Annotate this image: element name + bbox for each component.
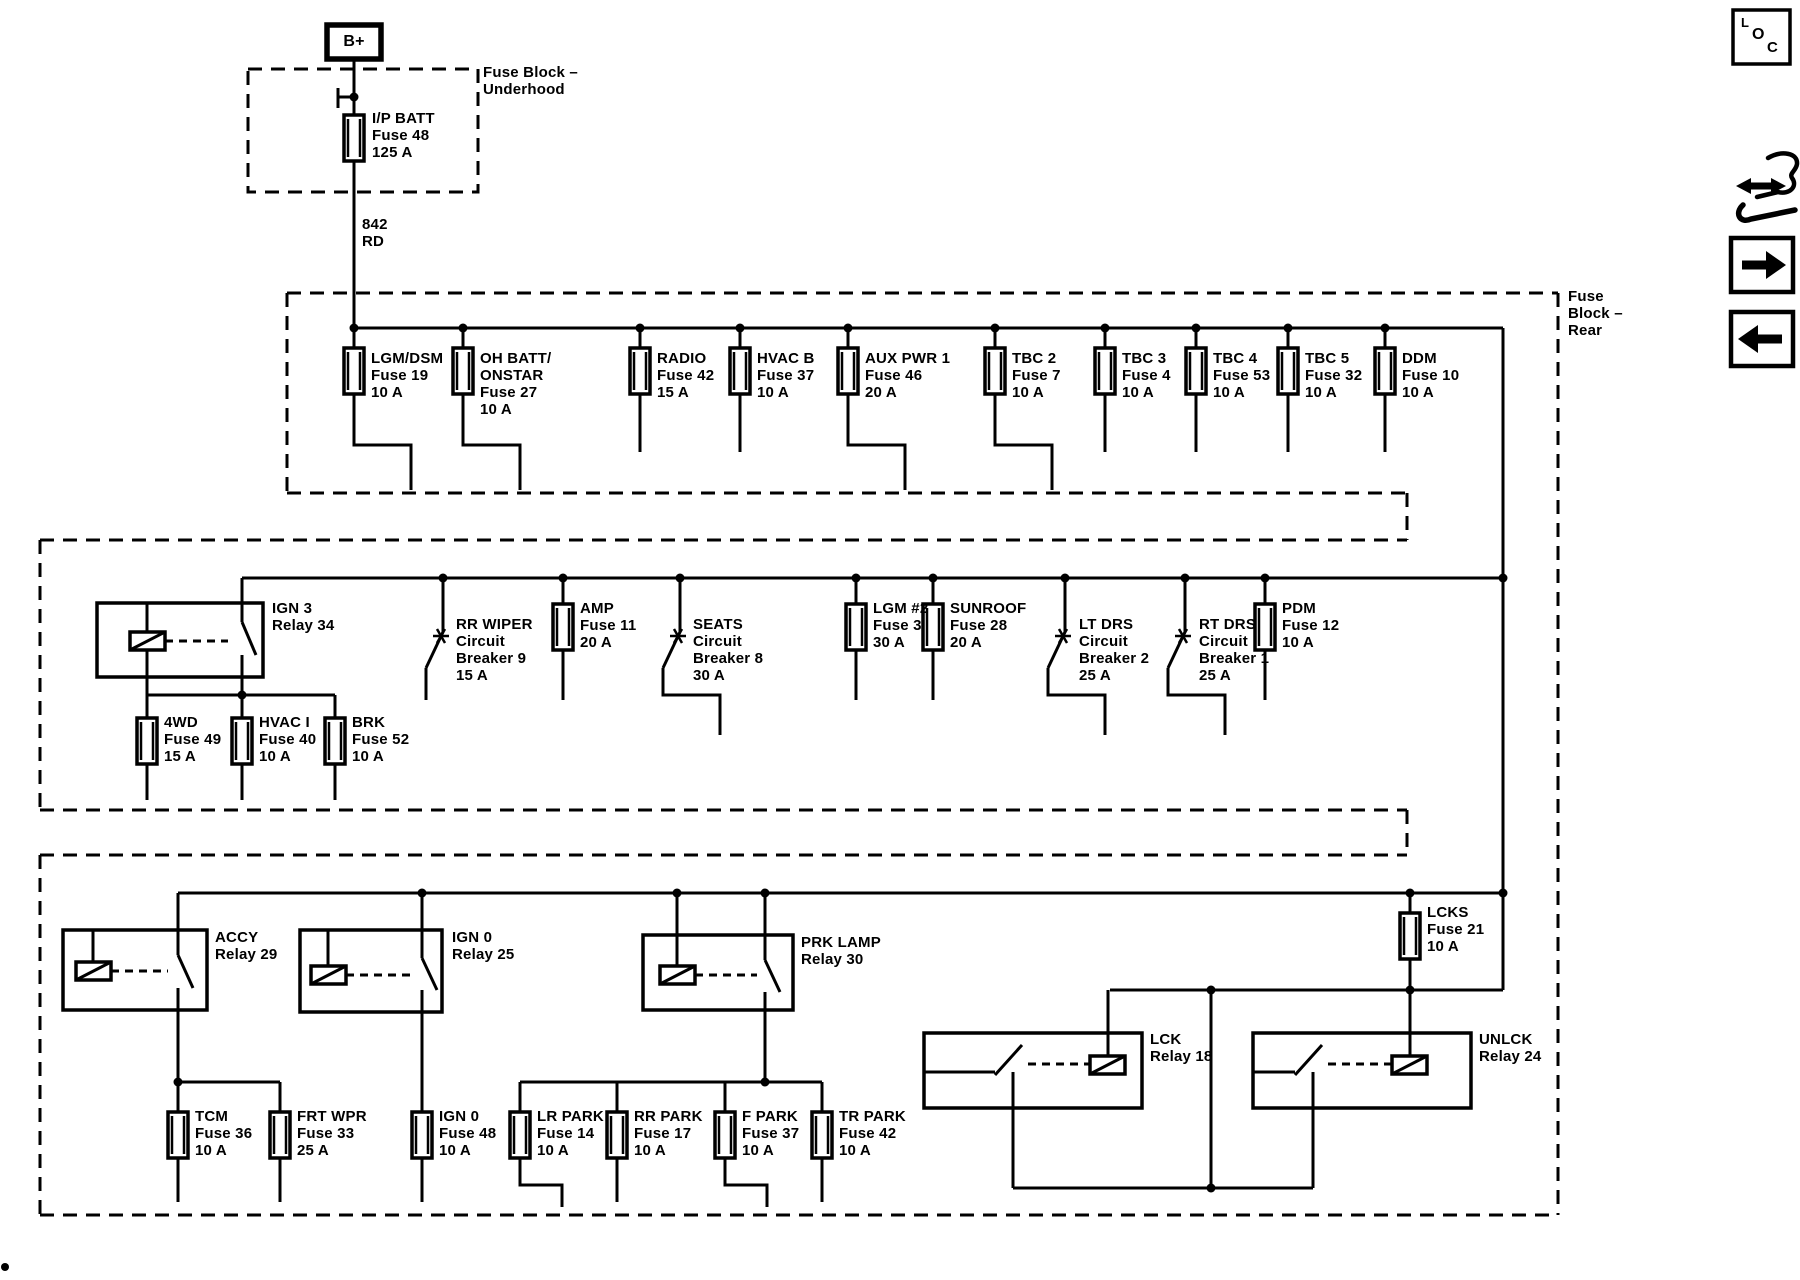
loc-letter-c: C <box>1767 39 1778 56</box>
label-line: 20 A <box>580 634 636 651</box>
label-line: 10 A <box>439 1142 496 1159</box>
label-relay-prk-lamp: PRK LAMPRelay 30 <box>801 934 881 968</box>
label-line: Fuse 37 <box>742 1125 799 1142</box>
label-line: PRK LAMP <box>801 934 881 951</box>
label-fuse-pdm: PDMFuse 1210 A <box>1282 600 1339 651</box>
label-line: Breaker 2 <box>1079 650 1149 667</box>
label-fuse-amp: AMPFuse 1120 A <box>580 600 636 651</box>
page-mark <box>1 1263 9 1271</box>
label-line: 30 A <box>873 634 928 651</box>
bplus-terminal-label: B+ <box>327 33 381 50</box>
label-relay-ign3: IGN 3Relay 34 <box>272 600 334 634</box>
label-fuse-hvac-b: HVAC BFuse 3710 A <box>757 350 815 401</box>
label-line: LGM #2 <box>873 600 928 617</box>
label-line: SUNROOF <box>950 600 1026 617</box>
label-line: 30 A <box>693 667 763 684</box>
label-line: HVAC B <box>757 350 815 367</box>
label-fuse-4wd: 4WDFuse 4915 A <box>164 714 221 765</box>
label-line: 20 A <box>865 384 950 401</box>
label-fuse-block-underhood: Fuse Block –Underhood <box>483 64 578 98</box>
label-line: LCK <box>1150 1031 1212 1048</box>
breaker-symbol-rt-drs <box>1175 629 1191 643</box>
label-relay-ign0: IGN 0Relay 25 <box>452 929 514 963</box>
label-fuse-lgm-2: LGM #2Fuse 330 A <box>873 600 928 651</box>
label-line: IGN 0 <box>439 1108 496 1125</box>
loc-letter-l: L <box>1741 15 1749 30</box>
label-fuse-tbc-3: TBC 3Fuse 410 A <box>1122 350 1171 401</box>
label-line: 10 A <box>1122 384 1171 401</box>
label-line: ACCY <box>215 929 277 946</box>
label-line: Fuse 32 <box>1305 367 1362 384</box>
label-line: Circuit <box>1199 633 1269 650</box>
fuse-symbol-ign-0 <box>412 1112 432 1158</box>
label-line: LCKS <box>1427 904 1484 921</box>
label-line: 15 A <box>657 384 714 401</box>
next-page-icon[interactable] <box>1731 238 1793 292</box>
label-line: Breaker 9 <box>456 650 533 667</box>
label-fuse-lr-park: LR PARKFuse 1410 A <box>537 1108 604 1159</box>
label-fuse-sunroof: SUNROOFFuse 2820 A <box>950 600 1026 651</box>
label-relay-lck: LCKRelay 18 <box>1150 1031 1212 1065</box>
label-fuse-ip-batt: I/P BATTFuse 48125 A <box>372 110 435 161</box>
label-fuse-tr-park: TR PARKFuse 4210 A <box>839 1108 906 1159</box>
label-line: 10 A <box>757 384 815 401</box>
label-line: Fuse 48 <box>372 127 435 144</box>
label-line: AMP <box>580 600 636 617</box>
label-line: AUX PWR 1 <box>865 350 950 367</box>
label-line: FRT WPR <box>297 1108 367 1125</box>
fuse-symbol-tr-park <box>812 1112 832 1158</box>
fuse-symbol-amp <box>553 604 573 650</box>
label-line: Fuse 42 <box>657 367 714 384</box>
label-line: TBC 3 <box>1122 350 1171 367</box>
label-line: 25 A <box>1079 667 1149 684</box>
fuse-symbol-tbc-3 <box>1095 348 1115 394</box>
label-line: UNLCK <box>1479 1031 1541 1048</box>
label-line: PDM <box>1282 600 1339 617</box>
label-line: Fuse Block – <box>483 64 578 81</box>
wiring-diagram-page: B+ Fuse Block –Underhood I/P BATTFuse 48… <box>0 0 1800 1280</box>
label-line: 10 A <box>195 1142 252 1159</box>
label-fuse-brk: BRKFuse 5210 A <box>352 714 409 765</box>
label-breaker-lt-drs: LT DRSCircuitBreaker 225 A <box>1079 616 1149 684</box>
fuse-symbol-lgm-2 <box>846 604 866 650</box>
label-line: IGN 0 <box>452 929 514 946</box>
label-line: Fuse 3 <box>873 617 928 634</box>
label-line: 15 A <box>164 748 221 765</box>
breaker-symbol-seats <box>670 629 686 643</box>
label-fuse-frt-wpr: FRT WPRFuse 3325 A <box>297 1108 367 1159</box>
label-line: 10 A <box>480 401 551 418</box>
fuse-symbol-lgm-dsm <box>344 348 364 394</box>
label-fuse-tbc-5: TBC 5Fuse 3210 A <box>1305 350 1362 401</box>
label-line: Fuse 40 <box>259 731 316 748</box>
fuse-symbol-tbc-2 <box>985 348 1005 394</box>
label-line: 10 A <box>1213 384 1270 401</box>
label-line: Fuse 14 <box>537 1125 604 1142</box>
label-relay-unlck: UNLCKRelay 24 <box>1479 1031 1541 1065</box>
label-line: Circuit <box>693 633 763 650</box>
label-line: Fuse 52 <box>352 731 409 748</box>
fuse-symbol-tbc-5 <box>1278 348 1298 394</box>
label-line: Fuse 10 <box>1402 367 1459 384</box>
label-line: Fuse 27 <box>480 384 551 401</box>
label-line: Relay 30 <box>801 951 881 968</box>
previous-page-icon[interactable] <box>1731 312 1793 366</box>
fuse-symbol-radio <box>630 348 650 394</box>
fuse-symbol-tcm <box>168 1112 188 1158</box>
breaker-symbol-rr-wiper <box>433 629 449 643</box>
pointer-arrows-icon[interactable] <box>1736 153 1797 220</box>
label-line: 10 A <box>839 1142 906 1159</box>
label-breaker-rr-wiper: RR WIPERCircuitBreaker 915 A <box>456 616 533 684</box>
label-line: Relay 24 <box>1479 1048 1541 1065</box>
label-line: Fuse 21 <box>1427 921 1484 938</box>
label-line: Circuit <box>1079 633 1149 650</box>
label-line: TCM <box>195 1108 252 1125</box>
label-line: 10 A <box>352 748 409 765</box>
label-fuse-tcm: TCMFuse 3610 A <box>195 1108 252 1159</box>
label-fuse-ign-0: IGN 0Fuse 4810 A <box>439 1108 496 1159</box>
label-line: 20 A <box>950 634 1026 651</box>
label-fuse-radio: RADIOFuse 4215 A <box>657 350 714 401</box>
fuse-symbol-lr-park <box>510 1112 530 1158</box>
loc-letter-o: O <box>1752 26 1764 44</box>
label-line: 10 A <box>742 1142 799 1159</box>
label-line: Fuse 53 <box>1213 367 1270 384</box>
label-line: Fuse 48 <box>439 1125 496 1142</box>
label-line: Relay 18 <box>1150 1048 1212 1065</box>
label-line: HVAC I <box>259 714 316 731</box>
fuse-symbol-rr-park <box>607 1112 627 1158</box>
label-line: TBC 5 <box>1305 350 1362 367</box>
label-line: Breaker 8 <box>693 650 763 667</box>
fuse-symbol-f-park <box>715 1112 735 1158</box>
label-fuse-hvac-i: HVAC IFuse 4010 A <box>259 714 316 765</box>
label-line: Fuse 36 <box>195 1125 252 1142</box>
fuse-symbol-oh-batt-onstar <box>453 348 473 394</box>
label-line: Fuse 19 <box>371 367 443 384</box>
label-line: Fuse <box>1568 288 1623 305</box>
label-line: Fuse 12 <box>1282 617 1339 634</box>
label-line: TBC 2 <box>1012 350 1061 367</box>
label-line: 15 A <box>456 667 533 684</box>
label-line: LT DRS <box>1079 616 1149 633</box>
label-line: 10 A <box>634 1142 703 1159</box>
label-line: 10 A <box>371 384 443 401</box>
fuse-symbol-ip-batt <box>344 115 364 161</box>
label-fuse-tbc-4: TBC 4Fuse 5310 A <box>1213 350 1270 401</box>
label-line: 10 A <box>1012 384 1061 401</box>
label-line: TR PARK <box>839 1108 906 1125</box>
label-line: Relay 25 <box>452 946 514 963</box>
label-line: 4WD <box>164 714 221 731</box>
label-line: DDM <box>1402 350 1459 367</box>
label-line: Fuse 11 <box>580 617 636 634</box>
label-line: Fuse 7 <box>1012 367 1061 384</box>
label-fuse-rr-park: RR PARKFuse 1710 A <box>634 1108 703 1159</box>
fuse-symbol-frt-wpr <box>270 1112 290 1158</box>
label-line: RT DRS <box>1199 616 1269 633</box>
label-line: SEATS <box>693 616 763 633</box>
label-line: 25 A <box>1199 667 1269 684</box>
label-line: RR WIPER <box>456 616 533 633</box>
label-line: OH BATT/ <box>480 350 551 367</box>
label-relay-accy: ACCYRelay 29 <box>215 929 277 963</box>
label-line: 10 A <box>1427 938 1484 955</box>
label-line: F PARK <box>742 1108 799 1125</box>
label-fuse-tbc-2: TBC 2Fuse 710 A <box>1012 350 1061 401</box>
label-breaker-rt-drs: RT DRSCircuitBreaker 125 A <box>1199 616 1269 684</box>
label-breaker-seats: SEATSCircuitBreaker 830 A <box>693 616 763 684</box>
label-line: Fuse 28 <box>950 617 1026 634</box>
label-fuse-aux-pwr-1: AUX PWR 1Fuse 4620 A <box>865 350 950 401</box>
label-line: 10 A <box>1402 384 1459 401</box>
label-fuse-f-park: F PARKFuse 3710 A <box>742 1108 799 1159</box>
fuse-symbol-hvac-b <box>730 348 750 394</box>
label-line: LR PARK <box>537 1108 604 1125</box>
label-line: Fuse 49 <box>164 731 221 748</box>
label-fuse-oh-batt-onstar: OH BATT/ONSTARFuse 2710 A <box>480 350 551 418</box>
label-line: Circuit <box>456 633 533 650</box>
label-fuse-lgm-dsm: LGM/DSMFuse 1910 A <box>371 350 443 401</box>
label-line: Fuse 42 <box>839 1125 906 1142</box>
fuse-symbol-brk <box>325 718 345 764</box>
label-line: Fuse 37 <box>757 367 815 384</box>
label-line: I/P BATT <box>372 110 435 127</box>
label-line: Rear <box>1568 322 1623 339</box>
label-line: 125 A <box>372 144 435 161</box>
label-line: RD <box>362 233 388 250</box>
label-fuse-lcks: LCKSFuse 2110 A <box>1427 904 1484 955</box>
label-line: 10 A <box>1282 634 1339 651</box>
label-line: 10 A <box>259 748 316 765</box>
label-line: TBC 4 <box>1213 350 1270 367</box>
label-line: BRK <box>352 714 409 731</box>
label-line: Relay 29 <box>215 946 277 963</box>
label-fuse-ddm: DDMFuse 1010 A <box>1402 350 1459 401</box>
label-line: Fuse 17 <box>634 1125 703 1142</box>
label-line: ONSTAR <box>480 367 551 384</box>
label-line: Fuse 33 <box>297 1125 367 1142</box>
fuse-symbol-hvac-i <box>232 718 252 764</box>
label-line: Block – <box>1568 305 1623 322</box>
label-line: 10 A <box>1305 384 1362 401</box>
fuse-symbol-4wd <box>137 718 157 764</box>
fuse-symbol-aux-pwr-1 <box>838 348 858 394</box>
label-line: Fuse 46 <box>865 367 950 384</box>
label-line: Underhood <box>483 81 578 98</box>
label-line: IGN 3 <box>272 600 334 617</box>
label-line: Relay 34 <box>272 617 334 634</box>
label-wire-842-rd: 842RD <box>362 216 388 250</box>
fuse-symbol-tbc-4 <box>1186 348 1206 394</box>
label-line: Fuse 4 <box>1122 367 1171 384</box>
label-line: Breaker 1 <box>1199 650 1269 667</box>
label-line: RR PARK <box>634 1108 703 1125</box>
label-fuse-block-rear: FuseBlock –Rear <box>1568 288 1623 339</box>
label-line: 25 A <box>297 1142 367 1159</box>
breaker-symbol-lt-drs <box>1055 629 1071 643</box>
label-line: LGM/DSM <box>371 350 443 367</box>
fuse-symbol-ddm <box>1375 348 1395 394</box>
relay-symbol-ign3 <box>97 603 263 677</box>
label-line: 10 A <box>537 1142 604 1159</box>
label-line: RADIO <box>657 350 714 367</box>
fuse-symbol-lcks <box>1400 913 1420 959</box>
label-line: 842 <box>362 216 388 233</box>
